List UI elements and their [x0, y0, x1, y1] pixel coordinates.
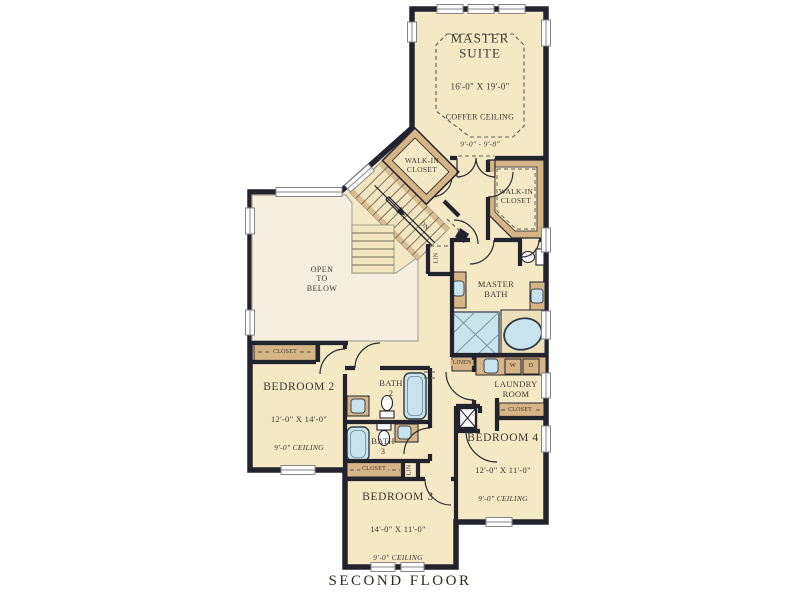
- label-master-suite: MASTER SUITE 16'-0" X 19'-0" COFFER CEIL…: [446, 12, 514, 169]
- room-name: BEDROOM 3: [362, 491, 434, 505]
- sink-icon: [453, 281, 464, 296]
- room-dims: 14'-0" X 11'-0": [362, 524, 434, 534]
- label-lin-1: LIN: [433, 253, 440, 264]
- label-closet-bedroom2: CLOSET: [271, 349, 299, 355]
- room-dims: 12'-0" X 11'-0": [467, 465, 539, 475]
- label-laundry-room: LAUNDRY ROOM: [494, 379, 537, 399]
- room-ceiling: 9'-0" CEILING: [263, 444, 335, 453]
- label-walk-in-closet-1: WALK-IN CLOSET: [405, 157, 439, 175]
- room-ceiling: COFFER CEILING: [446, 112, 514, 121]
- window-icon: [542, 311, 551, 339]
- sink-icon: [531, 289, 543, 303]
- window-icon: [542, 228, 551, 252]
- room-name: BEDROOM 4: [467, 432, 539, 446]
- room-name: BEDROOM 2: [263, 381, 335, 395]
- sink-icon: [398, 426, 411, 439]
- window-icon: [542, 20, 551, 46]
- label-washer: W: [510, 362, 516, 370]
- room-name: MASTER SUITE: [446, 30, 514, 61]
- label-walk-in-closet-2: WALK-IN CLOSET: [499, 188, 533, 206]
- label-bath-3: BATH 3: [371, 436, 394, 456]
- floor-plan: MASTER SUITE 16'-0" X 19'-0" COFFER CEIL…: [0, 0, 800, 600]
- label-bath-2: BATH 2: [379, 378, 402, 398]
- window-icon: [276, 188, 342, 197]
- room-ceiling: 9'-0" CEILING: [362, 554, 434, 563]
- window-icon: [246, 310, 255, 335]
- label-master-bath: MASTER BATH: [478, 279, 514, 299]
- room-ceiling-height: 9'-0" - 9'-8": [446, 141, 514, 150]
- window-icon: [542, 373, 551, 398]
- label-open-to-below: OPEN TO BELOW: [307, 265, 337, 293]
- stairs-winders: [352, 225, 394, 273]
- label-closet-bath3: CLOSET: [360, 466, 388, 472]
- shower-icon: [452, 312, 499, 357]
- sink-icon: [351, 399, 365, 413]
- label-bedroom-2: BEDROOM 2 12'-0" X 14'-0" 9'-0" CEILING: [263, 362, 335, 472]
- laundry-sink-icon: [484, 359, 498, 373]
- bath3-tub-icon: [347, 427, 369, 461]
- window-icon: [408, 22, 417, 42]
- label-dryer: D: [529, 362, 534, 370]
- room-dims: 12'-0" X 14'-0": [263, 414, 335, 424]
- room-dims: 16'-0" X 19'-0": [446, 82, 514, 93]
- window-icon: [246, 208, 255, 234]
- label-linen: LINEN: [451, 360, 474, 366]
- bath2-toilet-icon: [380, 396, 394, 419]
- label-bedroom-4: BEDROOM 4 12'-0" X 11'-0" 9'-0" CEILING: [467, 413, 539, 523]
- label-lin-2: LIN: [406, 465, 413, 476]
- room-ceiling: 9'-0" CEILING: [467, 495, 539, 504]
- label-closet-laundry: CLOSET: [506, 407, 534, 413]
- label-bedroom-3: BEDROOM 3 14'-0" X 11'-0" 9'-0" CEILING: [362, 472, 434, 582]
- master-tub-icon: [501, 310, 545, 357]
- bath2-tub-icon: [404, 373, 426, 419]
- plan-title: SECOND FLOOR: [329, 573, 472, 591]
- window-icon: [542, 426, 551, 452]
